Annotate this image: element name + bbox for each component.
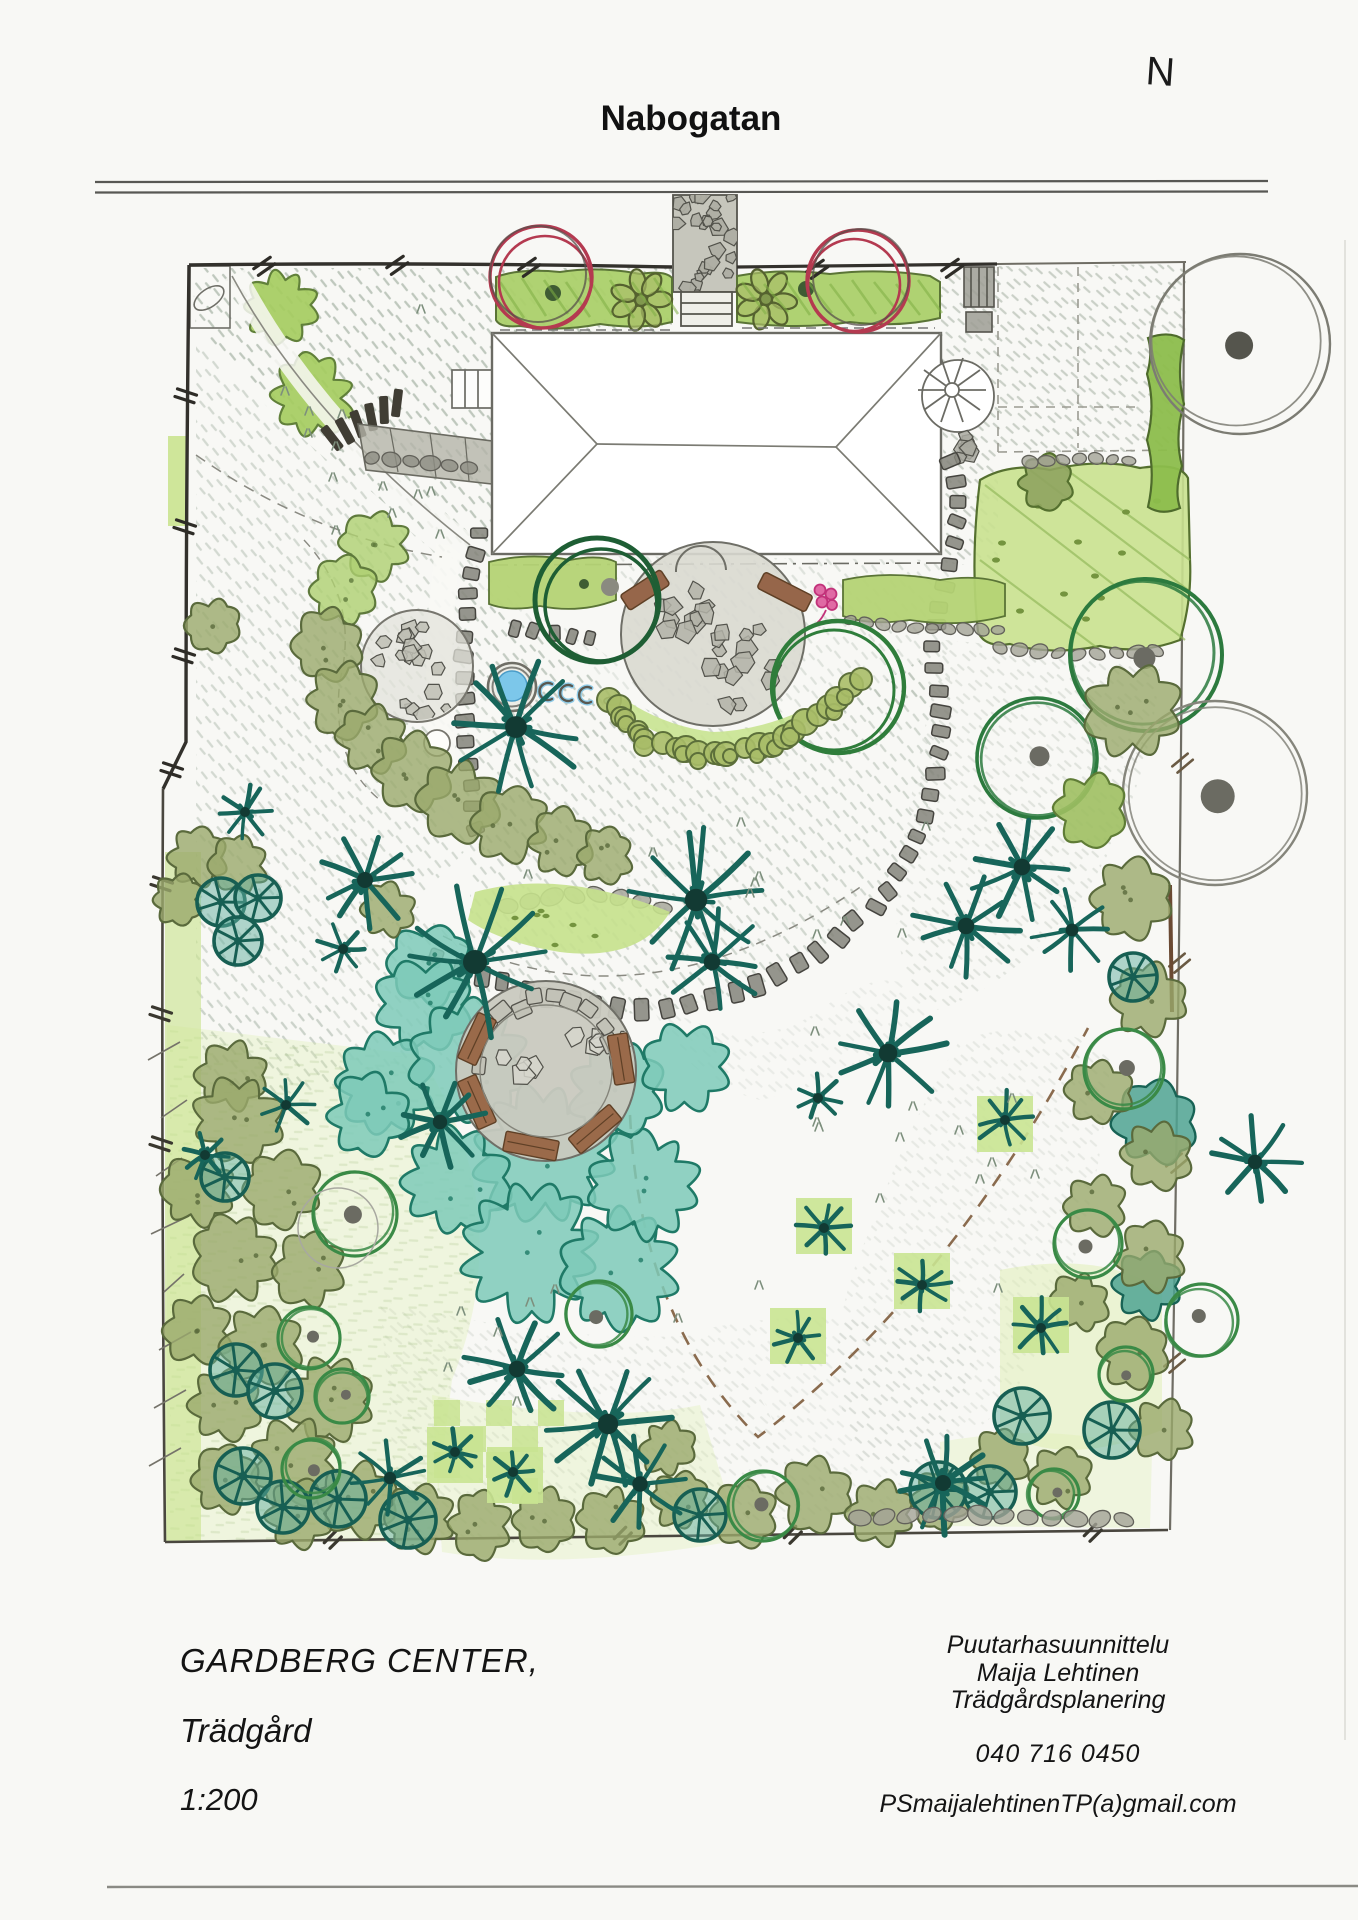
svg-text:Nabogatan: Nabogatan (601, 99, 782, 138)
svg-text:Puutarhasuunnittelu: Puutarhasuunnittelu (947, 1631, 1169, 1659)
svg-text:Trädgård: Trädgård (180, 1712, 313, 1749)
svg-text:040 716 0450: 040 716 0450 (976, 1740, 1141, 1768)
svg-text:1:200: 1:200 (180, 1782, 258, 1817)
svg-text:Maija Lehtinen: Maija Lehtinen (977, 1659, 1140, 1687)
svg-text:PSmaijalehtinenTP(a)gmail.com: PSmaijalehtinenTP(a)gmail.com (879, 1790, 1236, 1818)
svg-text:N: N (1144, 49, 1176, 95)
svg-text:Trädgårdsplanering: Trädgårdsplanering (951, 1686, 1166, 1714)
svg-text:GARDBERG CENTER,: GARDBERG CENTER, (180, 1642, 539, 1679)
